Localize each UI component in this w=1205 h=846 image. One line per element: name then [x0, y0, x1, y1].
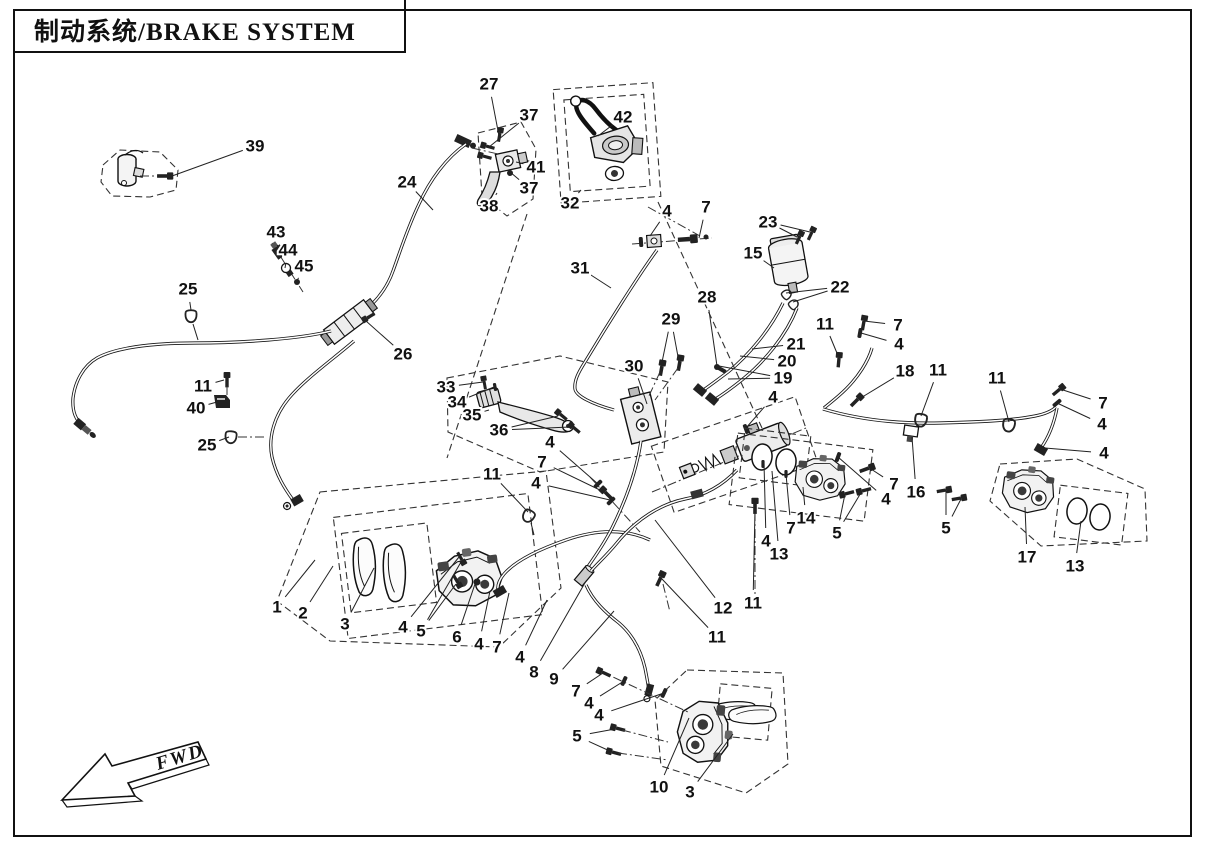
leader-line	[752, 346, 783, 350]
part-number-11: 11	[194, 377, 212, 396]
leader-line	[216, 380, 225, 382]
bolt	[609, 723, 626, 734]
part-number-5: 5	[832, 524, 841, 543]
leader-line	[764, 463, 766, 528]
bolt	[477, 151, 493, 161]
leader-line	[673, 332, 679, 362]
part-number-8: 8	[529, 663, 538, 682]
part-number-28: 28	[698, 288, 717, 307]
part-number-4: 4	[768, 388, 778, 407]
leader-line	[1000, 391, 1009, 423]
part-number-14: 14	[797, 509, 816, 528]
bolt	[848, 392, 865, 409]
leader-line	[587, 673, 603, 684]
leader-line	[830, 336, 839, 358]
part-number-45: 45	[295, 257, 314, 276]
part-number-15: 15	[744, 244, 763, 263]
leader-line	[912, 437, 915, 479]
part-number-42: 42	[614, 108, 633, 127]
part-number-27: 27	[480, 75, 499, 94]
part-number-26: 26	[394, 345, 413, 364]
parking-brake-handle-group	[101, 150, 178, 197]
part-number-23: 23	[759, 213, 778, 232]
fwd-arrow: FWD	[62, 740, 209, 807]
leader-line	[786, 474, 790, 515]
bolt	[224, 372, 231, 387]
title-block: 制动系统/BRAKE SYSTEM	[14, 0, 405, 52]
part-number-31: 31	[571, 259, 590, 278]
leader-line	[589, 741, 612, 752]
leader-line	[650, 222, 660, 236]
cable-end	[73, 418, 98, 441]
part-number-12: 12	[714, 599, 733, 618]
part-number-38: 38	[480, 197, 499, 216]
brake-system-diagram: 制动系统/BRAKE SYSTEM FWD	[0, 0, 1205, 846]
part-number-32: 32	[561, 194, 580, 213]
brake-pad	[1088, 503, 1111, 531]
parts-catalog-page: 制动系统/BRAKE SYSTEM FWD	[0, 0, 1205, 846]
cable-clip	[185, 310, 196, 322]
part-number-25: 25	[198, 436, 217, 455]
bolt	[855, 485, 872, 496]
part-number-4: 4	[545, 433, 555, 452]
leader-line	[1060, 389, 1091, 399]
leader-line	[1045, 448, 1091, 452]
washer	[704, 235, 709, 240]
leader-line	[501, 483, 528, 512]
fluid-reservoir	[767, 234, 810, 296]
brake-caliper	[1000, 463, 1057, 516]
bolt	[936, 486, 952, 495]
right-hose-group	[823, 315, 1067, 456]
part-number-18: 18	[896, 362, 915, 381]
part-number-1: 1	[272, 598, 281, 617]
cable-bracket	[214, 395, 230, 408]
bolt	[835, 352, 843, 368]
part-number-11: 11	[708, 628, 726, 647]
leader-line	[590, 729, 615, 734]
leader-line	[699, 220, 703, 238]
part-number-41: 41	[527, 158, 546, 177]
part-number-11: 11	[744, 594, 762, 613]
part-number-7: 7	[492, 638, 501, 657]
parking-lever-body	[495, 148, 528, 172]
leader-line	[772, 471, 778, 541]
part-number-4: 4	[1097, 415, 1107, 434]
part-number-30: 30	[625, 357, 644, 376]
part-number-4: 4	[881, 490, 891, 509]
part-number-16: 16	[907, 483, 926, 502]
bolt	[157, 172, 173, 179]
part-number-2: 2	[298, 604, 307, 623]
junction-valve-group	[447, 354, 727, 472]
part-number-7: 7	[571, 682, 580, 701]
banjo-union	[647, 235, 662, 248]
leader-line	[485, 410, 490, 411]
pipe-fitting	[714, 364, 727, 374]
brake-pad	[380, 543, 409, 603]
leader-line	[600, 681, 624, 696]
part-number-39: 39	[246, 137, 265, 156]
hose-holder	[903, 425, 919, 443]
part-number-5: 5	[572, 727, 581, 746]
leader-line	[844, 491, 862, 522]
part-number-37: 37	[520, 179, 539, 198]
upper-banjo-fitting-group	[632, 207, 712, 247]
part-number-35: 35	[463, 406, 482, 425]
bolt	[495, 127, 504, 142]
hose-fitting	[705, 392, 719, 406]
part-number-11: 11	[816, 315, 834, 334]
part-number-19: 19	[774, 369, 793, 388]
leader-line	[500, 593, 509, 634]
hose-clip	[521, 508, 537, 524]
rear-caliper-group	[595, 666, 788, 793]
cable-clip	[225, 431, 237, 444]
cable-junction	[319, 296, 379, 348]
part-number-17: 17	[1018, 548, 1037, 567]
washer	[639, 237, 644, 247]
distributor-valve	[619, 384, 661, 444]
leader-line	[1057, 403, 1090, 419]
part-number-5: 5	[416, 622, 425, 641]
part-number-13: 13	[1066, 557, 1085, 576]
part-number-11: 11	[988, 369, 1006, 388]
leader-line	[526, 600, 547, 645]
part-number-29: 29	[662, 310, 681, 329]
valve-part	[118, 150, 144, 186]
part-number-40: 40	[187, 399, 206, 418]
part-number-36: 36	[490, 421, 509, 440]
leader-line	[172, 150, 243, 176]
front-left-caliper-group	[277, 471, 640, 647]
brake-pad	[1065, 497, 1088, 525]
leader-line	[871, 469, 883, 477]
leader-line	[859, 378, 894, 399]
part-number-7: 7	[537, 453, 546, 472]
part-number-7: 7	[786, 519, 795, 538]
leader-line	[540, 581, 586, 661]
part-number-5: 5	[941, 519, 950, 538]
part-number-11: 11	[483, 465, 501, 484]
part-number-4: 4	[894, 335, 904, 354]
bolt	[805, 226, 817, 242]
bolt	[605, 747, 622, 758]
part-number-4: 4	[584, 694, 594, 713]
part-number-4: 4	[398, 618, 408, 637]
leader-line	[861, 333, 887, 340]
part-number-11: 11	[929, 361, 947, 380]
leader-line	[1077, 521, 1081, 553]
leader-line	[560, 451, 598, 484]
brake-lever-master-cylinder	[570, 90, 647, 185]
bolt	[675, 354, 685, 371]
nut	[507, 170, 513, 176]
leader-line	[563, 611, 614, 669]
part-number-7: 7	[1098, 394, 1107, 413]
leader-line	[728, 378, 770, 379]
leader-line	[952, 499, 961, 517]
hose-fitting	[693, 383, 707, 397]
bolt	[858, 462, 876, 474]
part-number-4: 4	[531, 474, 541, 493]
part-number-13: 13	[770, 545, 789, 564]
banjo-bolt	[678, 234, 698, 244]
leader-line	[285, 560, 315, 597]
part-number-4: 4	[594, 706, 604, 725]
leader-line	[219, 437, 229, 441]
leader-line	[864, 321, 885, 324]
bolt	[480, 141, 496, 151]
part-number-43: 43	[267, 223, 286, 242]
leader-line	[921, 382, 934, 416]
part-number-9: 9	[549, 670, 558, 689]
hose-end-fitting	[1034, 443, 1048, 456]
part-number-3: 3	[685, 783, 694, 802]
part-number-37: 37	[520, 106, 539, 125]
fwd-label: FWD	[152, 740, 206, 775]
part-number-4: 4	[474, 635, 484, 654]
part-number-22: 22	[831, 278, 850, 297]
part-number-10: 10	[650, 778, 669, 797]
parking-cables-group	[73, 144, 466, 511]
right-caliper-group	[990, 459, 1147, 546]
leader-line	[662, 579, 708, 628]
part-number-7: 7	[701, 198, 710, 217]
part-number-3: 3	[340, 615, 349, 634]
bolt	[654, 570, 667, 588]
leader-line	[496, 193, 497, 195]
part-number-4: 4	[515, 648, 525, 667]
part-number-4: 4	[662, 202, 672, 221]
brake-pad	[350, 537, 379, 597]
part-number-25: 25	[179, 280, 198, 299]
front-master-cylinder-group	[553, 83, 661, 204]
leader-line	[510, 172, 519, 180]
hose-fitting	[690, 489, 704, 500]
part-number-7: 7	[893, 316, 902, 335]
leader-line	[709, 310, 717, 366]
part-number-6: 6	[452, 628, 461, 647]
cable-end	[282, 494, 304, 511]
leader-line	[793, 291, 828, 302]
leader-line	[492, 97, 500, 136]
leader-line	[310, 566, 333, 602]
leader-line	[591, 275, 611, 288]
leader-line	[190, 302, 191, 310]
part-number-24: 24	[398, 173, 417, 192]
page-title: 制动系统/BRAKE SYSTEM	[34, 17, 356, 46]
leader-line	[366, 321, 393, 345]
part-number-4: 4	[1099, 444, 1109, 463]
